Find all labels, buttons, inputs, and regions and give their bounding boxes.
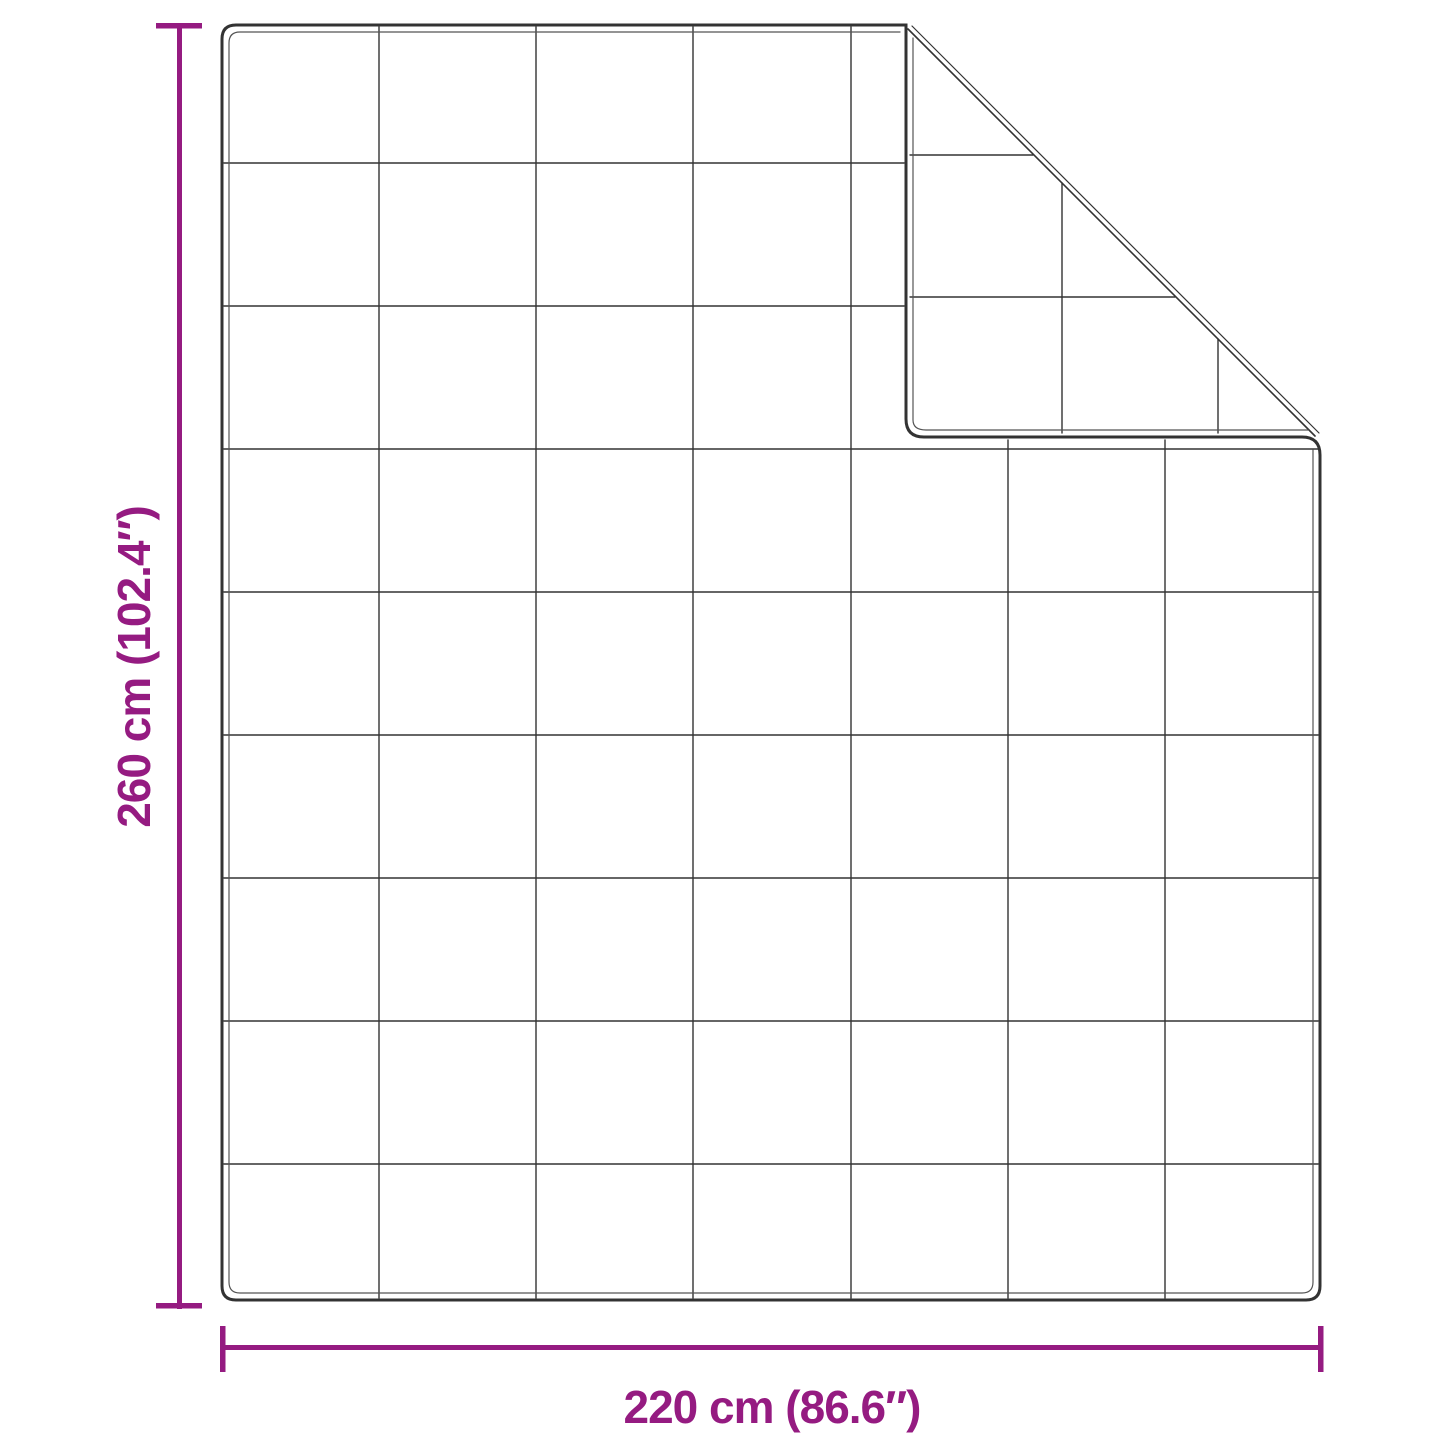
height-dimension-line bbox=[177, 23, 182, 1309]
height-dimension-arrow bbox=[156, 23, 202, 1309]
blanket bbox=[222, 25, 1320, 1300]
height-dimension-label: 260 cm (102.4″) bbox=[108, 506, 160, 828]
dimension-annotations: 260 cm (102.4″) 220 cm (86.6″) bbox=[108, 23, 1324, 1433]
product-dimension-image: 260 cm (102.4″) 220 cm (86.6″) bbox=[0, 0, 1445, 1445]
fold-crease-line bbox=[908, 29, 1315, 436]
width-dimension-arrow bbox=[220, 1326, 1324, 1372]
blanket-dimension-diagram: 260 cm (102.4″) 220 cm (86.6″) bbox=[0, 0, 1445, 1445]
width-dimension-cap-right bbox=[1318, 1326, 1324, 1372]
folded-corner bbox=[908, 26, 1319, 436]
blanket-hem-stitch-line bbox=[229, 32, 1313, 1293]
flap-hem-stitch-line bbox=[913, 38, 1308, 430]
fold-crease-line-outer bbox=[912, 26, 1319, 433]
flap-quilt-grid bbox=[910, 155, 1218, 433]
quilt-grid bbox=[224, 27, 1318, 1298]
width-dimension-label: 220 cm (86.6″) bbox=[624, 1381, 921, 1433]
blanket-outline bbox=[222, 25, 1320, 1300]
width-dimension-line bbox=[220, 1345, 1323, 1350]
height-dimension-cap-bottom bbox=[156, 1303, 202, 1309]
